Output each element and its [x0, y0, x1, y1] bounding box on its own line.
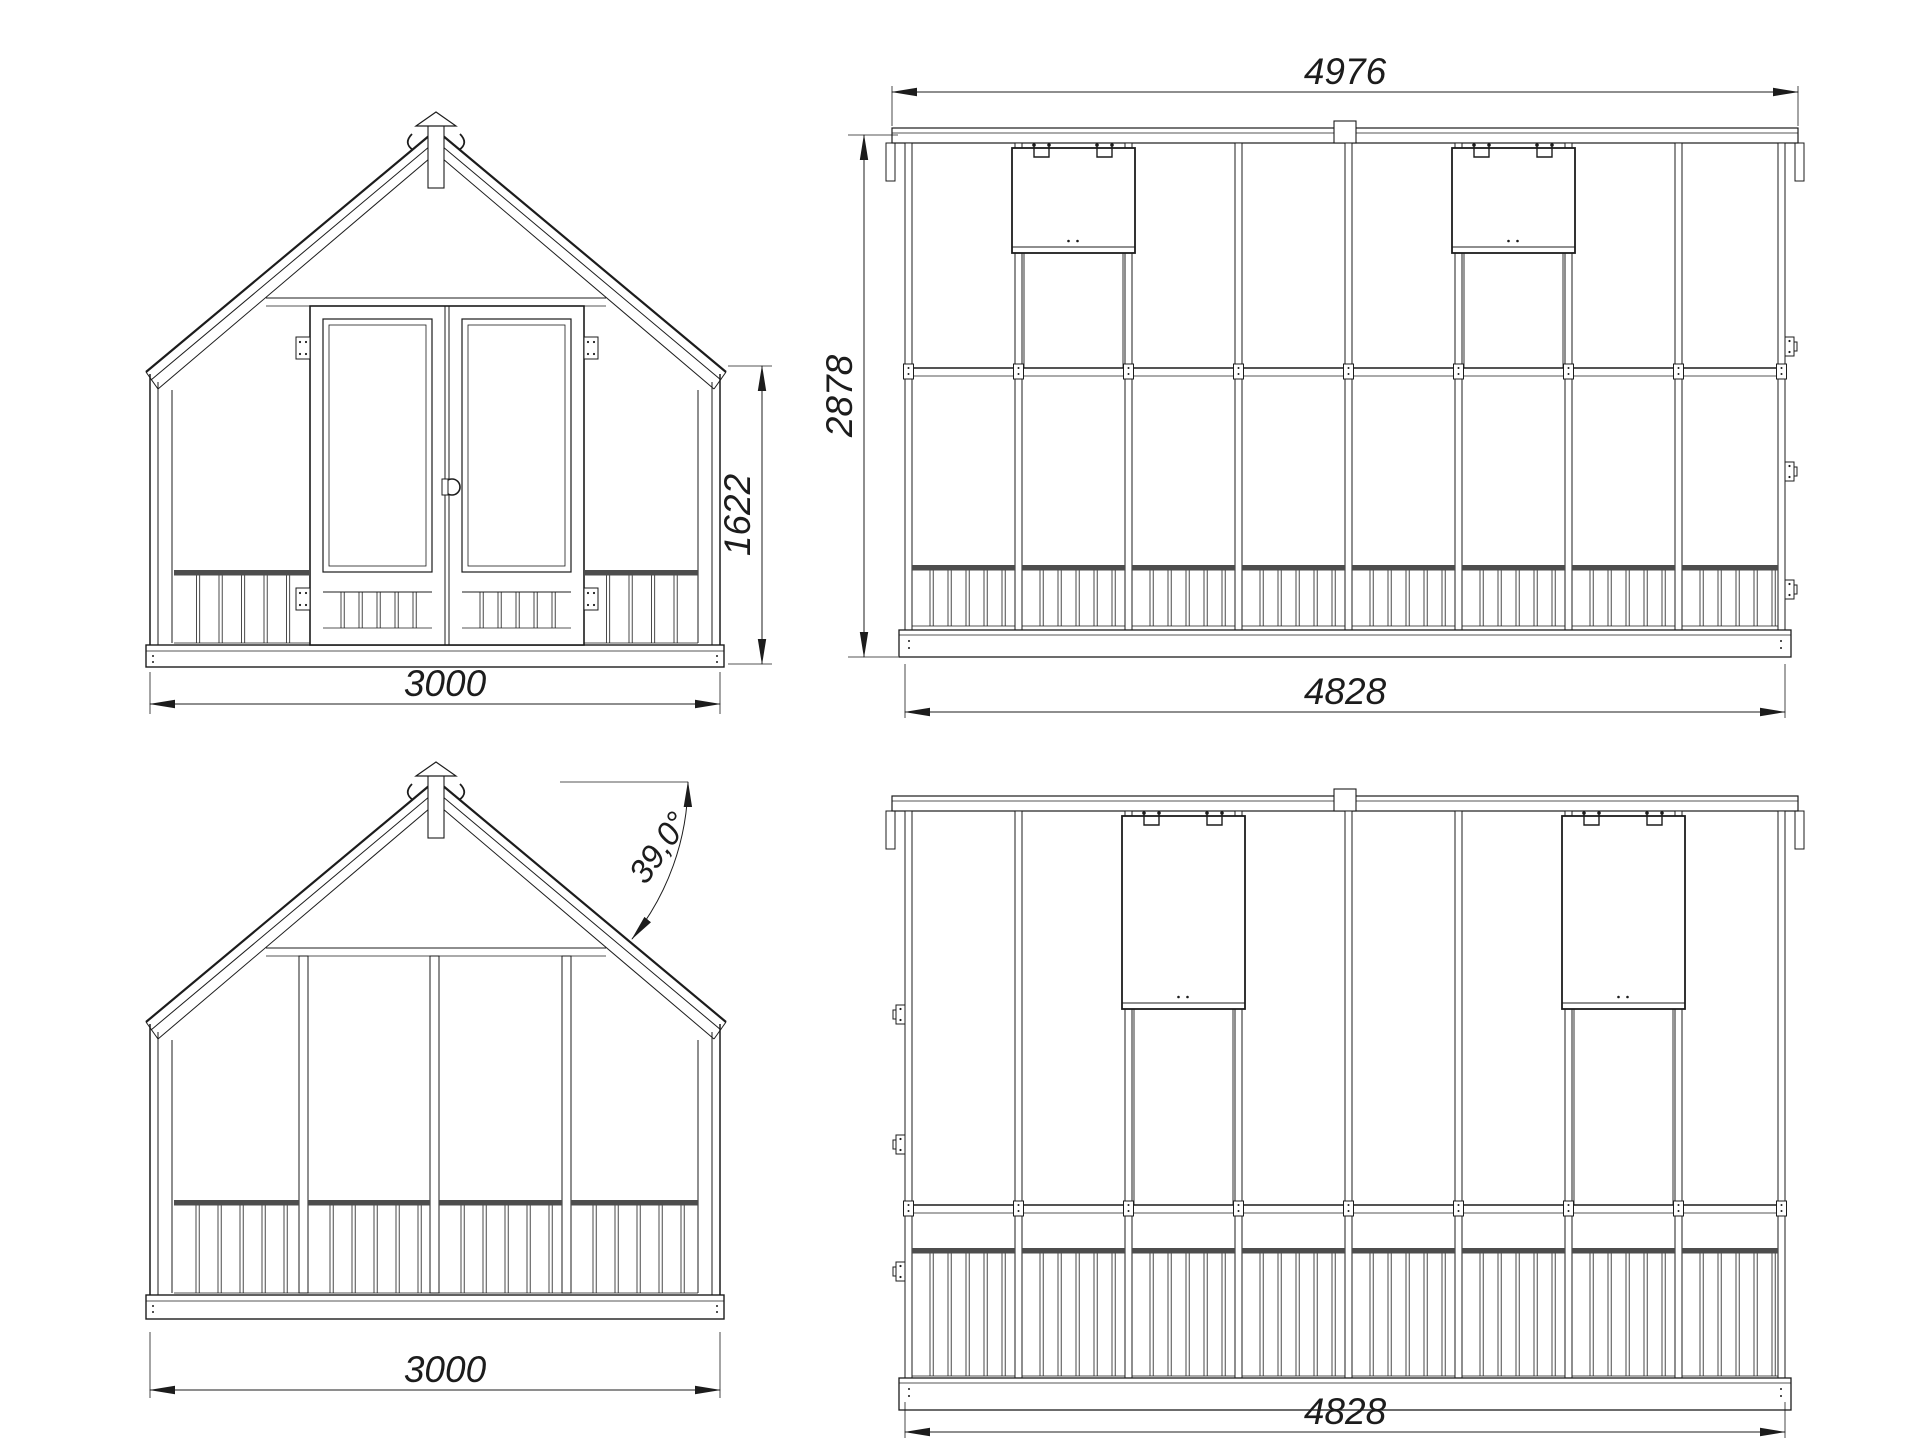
dimension-side-roof-length: 4976 — [892, 51, 1798, 126]
dimension-front-side-height: 1622 — [717, 366, 772, 664]
dimension-side-height: 2878 — [819, 135, 898, 657]
dim-label-side-length-upper: 4828 — [1304, 671, 1387, 712]
front-elevation-view — [146, 112, 726, 667]
technical-drawing-canvas: 3000 1622 4976 2878 4828 3000 39,0° 4828 — [0, 0, 1920, 1440]
dim-label-side-roof-length: 4976 — [1304, 51, 1387, 92]
dim-label-front-side-height: 1622 — [717, 473, 758, 556]
dim-label-side-height: 2878 — [819, 354, 860, 438]
drawing-sheet: 3000 1622 4976 2878 4828 3000 39,0° 4828 — [0, 0, 1920, 1440]
side-elevation-upper-view — [886, 121, 1804, 657]
side-elevation-lower-view — [886, 789, 1804, 1410]
dim-label-roof-angle: 39,0° — [621, 805, 696, 890]
dimension-roof-angle: 39,0° — [560, 782, 696, 939]
dimension-front-width: 3000 — [150, 663, 720, 714]
dimension-side-length-upper: 4828 — [905, 664, 1785, 718]
dim-label-front-width: 3000 — [404, 663, 487, 704]
dim-label-side-length-lower: 4828 — [1304, 1391, 1387, 1432]
dimension-rear-width: 3000 — [150, 1332, 720, 1398]
dim-label-rear-width: 3000 — [404, 1349, 487, 1390]
